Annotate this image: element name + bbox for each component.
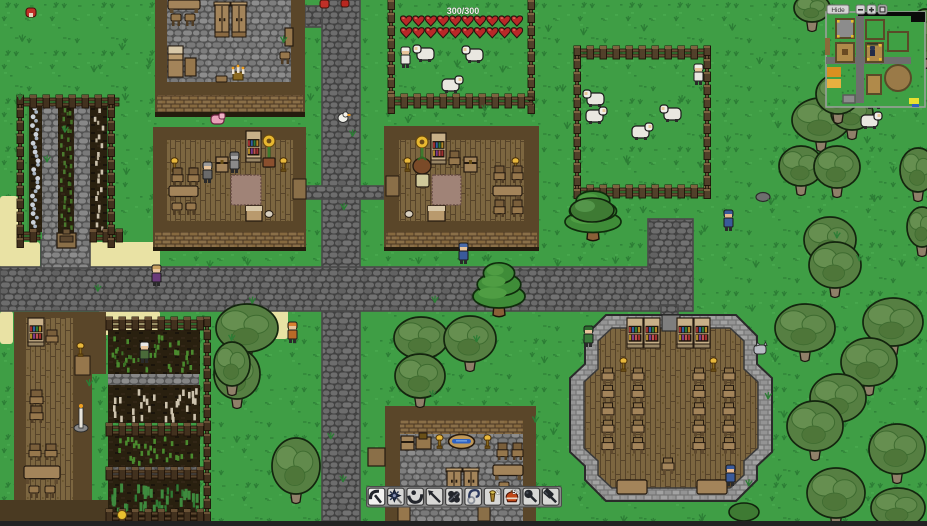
svg-text:50: 50 (513, 489, 521, 496)
svg-text:300/300: 300/300 (447, 6, 480, 16)
svg-text:2: 2 (496, 489, 500, 496)
svg-text:Hide: Hide (831, 7, 845, 14)
